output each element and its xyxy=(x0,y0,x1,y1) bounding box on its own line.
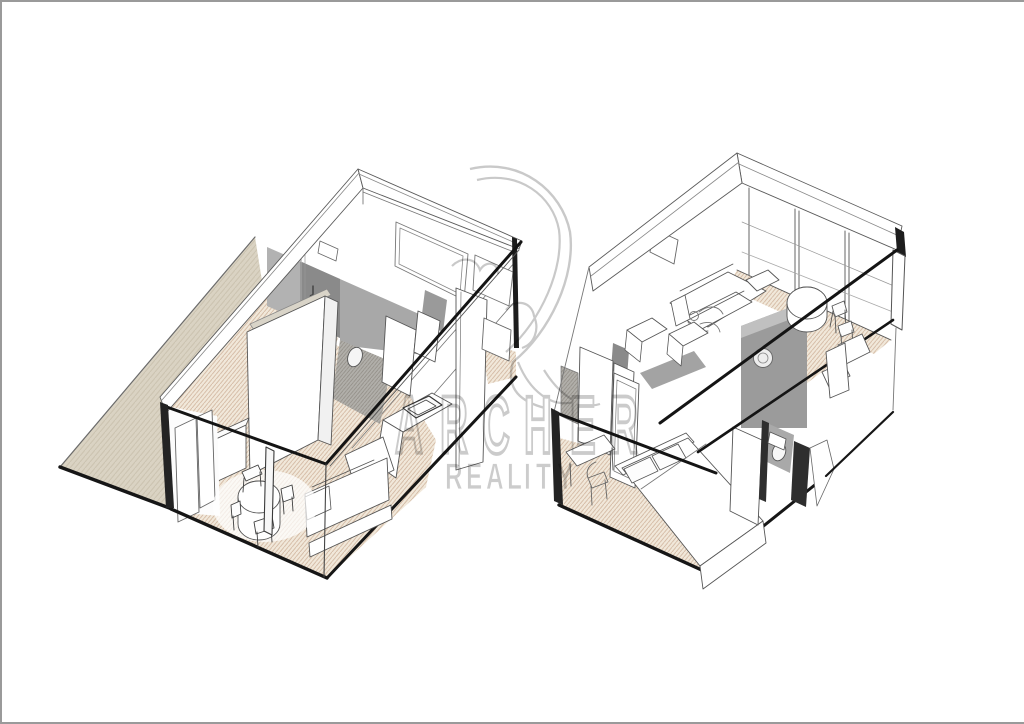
svg-text:T: T xyxy=(536,456,551,497)
svg-text:A: A xyxy=(395,379,423,471)
svg-text:R: R xyxy=(445,456,463,497)
svg-text:A: A xyxy=(486,456,504,497)
svg-text:L: L xyxy=(507,456,522,497)
svg-text:I: I xyxy=(524,456,531,497)
svg-text:Y: Y xyxy=(557,456,573,497)
svg-text:E: E xyxy=(466,456,482,497)
svg-text:E: E xyxy=(570,379,596,471)
svg-text:R: R xyxy=(610,379,638,471)
